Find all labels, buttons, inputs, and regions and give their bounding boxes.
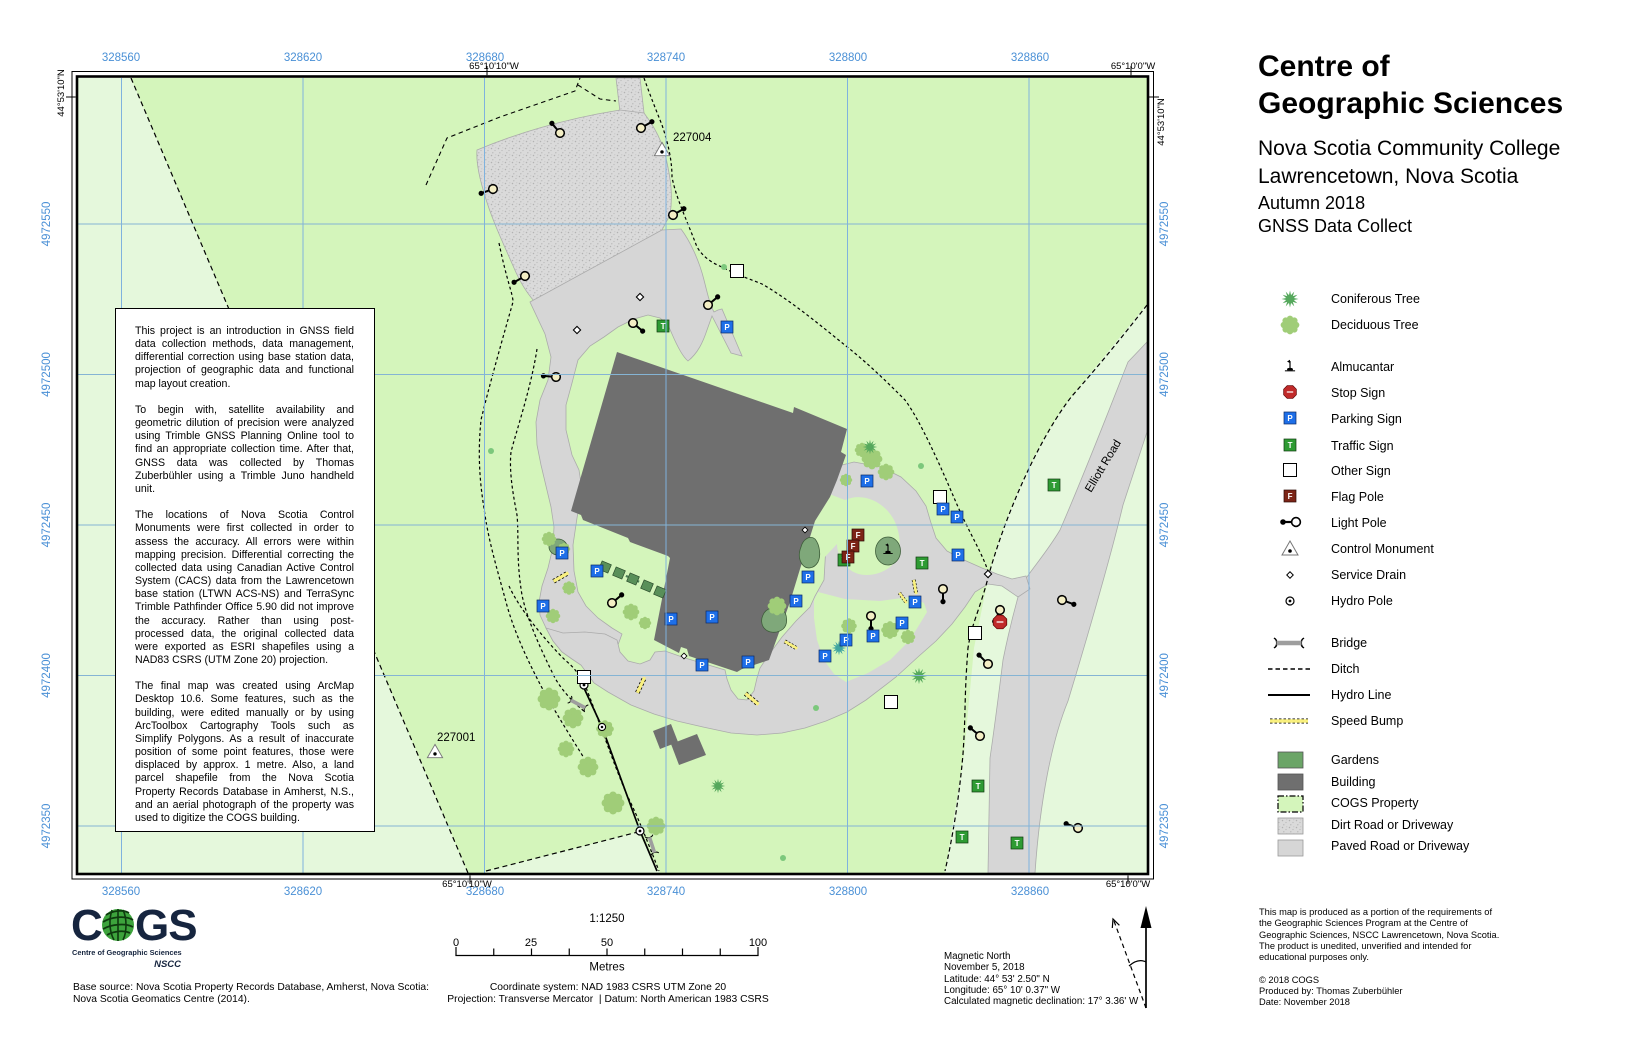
svg-text:65°10'10"W: 65°10'10"W [442, 879, 492, 890]
svg-text:44°53'10"N: 44°53'10"N [56, 69, 67, 117]
svg-text:328740: 328740 [647, 886, 685, 898]
svg-text:65°10'0"W: 65°10'0"W [1106, 879, 1150, 890]
svg-text:NSCC: NSCC [154, 959, 181, 970]
svg-text:328620: 328620 [284, 52, 322, 64]
svg-text:328800: 328800 [829, 886, 867, 898]
svg-text:65°10'10"W: 65°10'10"W [469, 61, 519, 72]
svg-text:1:1250: 1:1250 [589, 913, 624, 925]
svg-text:Centre of Geographic Sciences: Centre of Geographic Sciences [72, 948, 182, 957]
svg-text:4972500: 4972500 [41, 352, 53, 397]
svg-text:44°53'10"N: 44°53'10"N [1156, 98, 1167, 146]
svg-text:4972400: 4972400 [41, 653, 53, 698]
svg-text:50: 50 [601, 937, 613, 949]
svg-text:227001: 227001 [437, 732, 475, 744]
svg-text:328800: 328800 [829, 52, 867, 64]
svg-text:227004: 227004 [673, 132, 712, 144]
svg-text:328560: 328560 [102, 52, 140, 64]
svg-text:GS: GS [135, 901, 197, 950]
svg-text:4972550: 4972550 [1159, 202, 1171, 247]
svg-text:4972350: 4972350 [41, 804, 53, 849]
svg-text:4972450: 4972450 [1159, 503, 1171, 548]
svg-text:328740: 328740 [647, 52, 685, 64]
svg-text:4972550: 4972550 [41, 202, 53, 247]
svg-text:328860: 328860 [1011, 886, 1049, 898]
svg-text:4972350: 4972350 [1159, 804, 1171, 849]
svg-text:65°10'0"W: 65°10'0"W [1111, 61, 1155, 72]
svg-text:25: 25 [525, 937, 537, 949]
svg-text:328560: 328560 [102, 886, 140, 898]
svg-text:328620: 328620 [284, 886, 322, 898]
svg-text:4972500: 4972500 [1159, 352, 1171, 397]
svg-text:4972400: 4972400 [1159, 653, 1171, 698]
svg-text:4972450: 4972450 [41, 503, 53, 548]
svg-text:C: C [71, 901, 102, 950]
svg-text:Metres: Metres [589, 962, 624, 974]
svg-text:328860: 328860 [1011, 52, 1049, 64]
